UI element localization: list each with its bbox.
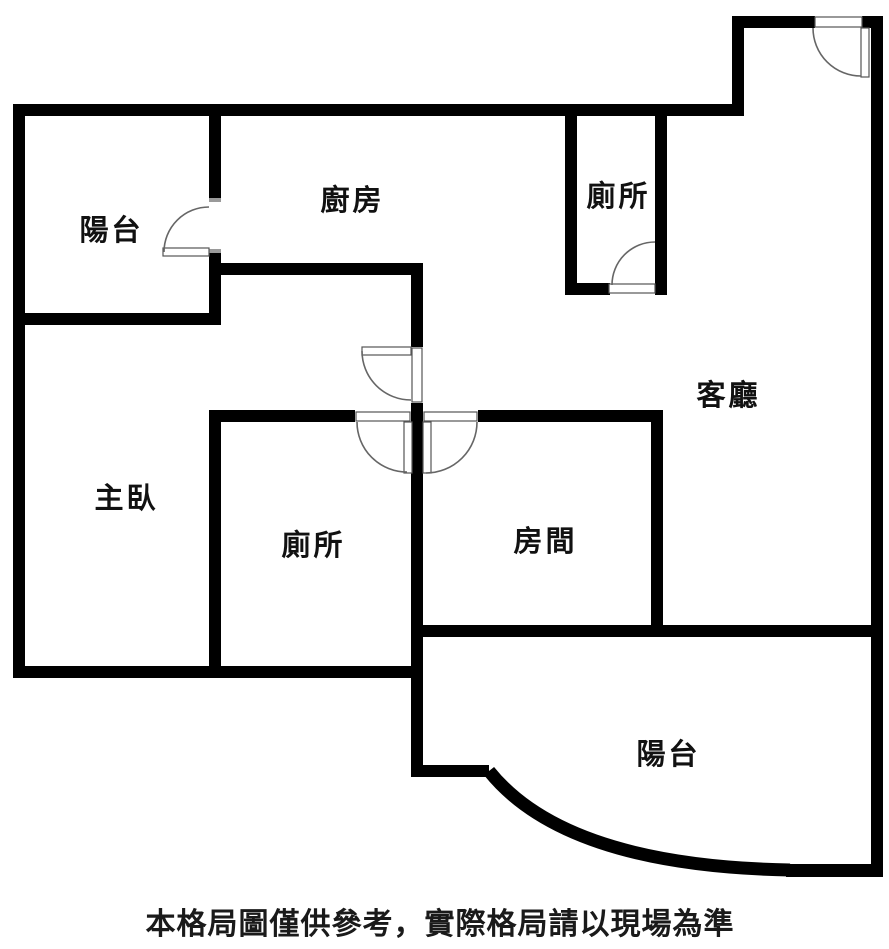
entry-door-leaf bbox=[861, 28, 869, 77]
wall-outer-bottom-right bbox=[786, 864, 883, 877]
wall-toilet-top-right bbox=[655, 116, 667, 295]
balcony-door-leaf bbox=[163, 248, 209, 256]
wall-outer-right bbox=[871, 16, 883, 877]
corridor-door-leaf bbox=[362, 347, 411, 355]
balcony-door-jamb-top bbox=[209, 198, 221, 202]
wall-outer-top-left bbox=[13, 104, 744, 116]
room-label-living-room: 客廳 bbox=[693, 372, 760, 414]
wall-balcony-curve bbox=[489, 771, 790, 870]
wall-central-vertical-lower bbox=[411, 403, 423, 777]
wall-master-divider bbox=[209, 410, 221, 678]
wall-bedroom-right bbox=[651, 410, 663, 637]
room-label-balcony-top: 陽台 bbox=[76, 207, 143, 249]
toilet-top-door-arc bbox=[612, 242, 655, 285]
room-label-toilet-middle: 廁所 bbox=[278, 522, 345, 564]
wall-outer-top-step bbox=[732, 16, 744, 116]
toilet-top-door-leaf bbox=[609, 284, 655, 293]
toilet-middle-door-frame bbox=[356, 412, 410, 421]
toilet-middle-door bbox=[356, 412, 412, 473]
bedroom-door bbox=[423, 412, 477, 473]
floor-plan: 陽台 廚房 廁所 客廳 主臥 廁所 房間 陽台 本格局圖僅供參考，實際格局請以現… bbox=[0, 0, 889, 949]
bedroom-door-frame bbox=[424, 412, 477, 421]
wall-balcony-top-right-a bbox=[209, 116, 221, 198]
entry-door-frame bbox=[815, 17, 862, 27]
balcony-door bbox=[163, 198, 221, 256]
wall-kitchen-bottom bbox=[209, 263, 423, 275]
toilet-top-door bbox=[609, 242, 655, 293]
disclaimer-text: 本格局圖僅供參考，實際格局請以現場為準 bbox=[146, 899, 735, 943]
balcony-door-jamb-bottom bbox=[209, 249, 221, 253]
wall-toilet-top-left bbox=[565, 116, 577, 295]
wall-balcony-bottom-stub bbox=[411, 765, 489, 777]
wall-mid-horizontal-left bbox=[209, 410, 355, 422]
corridor-door bbox=[362, 347, 422, 402]
wall-balcony-top-bottom bbox=[13, 313, 221, 325]
toilet-middle-door-arc bbox=[357, 422, 407, 472]
bedroom-door-arc bbox=[426, 422, 477, 473]
room-label-master-bedroom: 主臥 bbox=[91, 475, 158, 517]
entry-door bbox=[813, 17, 869, 77]
wall-mid-horizontal-right bbox=[478, 410, 663, 422]
entry-door-arc bbox=[813, 28, 861, 76]
corridor-door-arc bbox=[362, 351, 411, 400]
toilet-middle-door-leaf bbox=[404, 422, 412, 473]
doors bbox=[163, 17, 869, 473]
wall-central-vertical-upper bbox=[411, 263, 423, 347]
room-label-bedroom: 房間 bbox=[510, 518, 577, 560]
corridor-door-frame bbox=[412, 348, 422, 402]
balcony-door-arc bbox=[164, 207, 209, 252]
wall-outer-left bbox=[13, 104, 25, 678]
room-label-kitchen: 廚房 bbox=[317, 177, 384, 219]
walls bbox=[13, 16, 883, 877]
wall-balcony-bottom-top bbox=[411, 625, 883, 637]
room-label-toilet-top: 廁所 bbox=[583, 173, 650, 215]
wall-toilet-top-bottom bbox=[565, 283, 610, 295]
room-label-balcony-bottom: 陽台 bbox=[633, 731, 700, 773]
bedroom-door-leaf bbox=[423, 422, 431, 473]
wall-outer-top-right-a bbox=[732, 16, 815, 28]
